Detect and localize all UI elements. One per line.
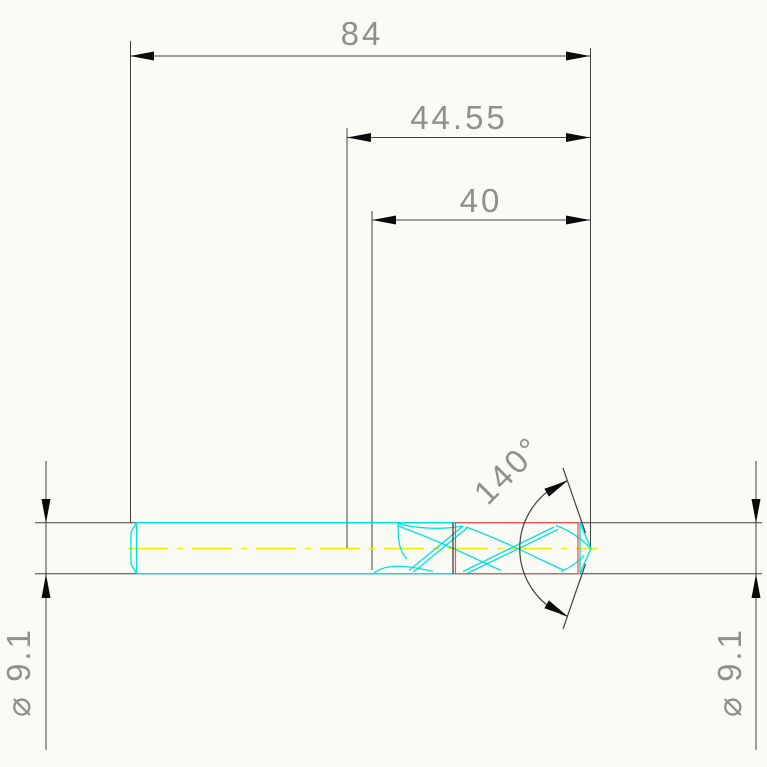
arrowhead-40-right — [566, 216, 590, 225]
flute-edge — [468, 530, 558, 574]
flute-tip-curve — [556, 526, 590, 549]
dim-44-55-label: 44.55 — [410, 99, 508, 136]
arrowhead-44-55-right — [566, 133, 590, 142]
arrowhead-84-right — [566, 52, 590, 61]
arrowhead-44-55-left — [347, 133, 371, 142]
point-face-top — [580, 523, 591, 549]
dim-diameter-left-label: ⌀ 9.1 — [0, 627, 37, 717]
dim-diameter-right-label: ⌀ 9.1 — [711, 627, 748, 717]
flute-runout-bottom — [374, 566, 433, 573]
arrowhead-84-left — [130, 52, 154, 61]
arrowhead-diameter-right-down — [752, 499, 761, 523]
point-face-bottom — [580, 549, 591, 574]
arrowhead-angle-top — [544, 481, 567, 497]
arrowhead-40-left — [372, 216, 396, 225]
dimension-diameter-left: ⌀ 9.1 — [0, 461, 51, 750]
dimension-shank-to-point: 44.55 — [347, 99, 590, 142]
arrowhead-angle-bottom — [544, 600, 567, 616]
technical-drawing: 84 44.55 40 ⌀ 9.1 ⌀ 9.1 — [0, 0, 767, 767]
dimension-point-angle: 140° — [466, 428, 585, 629]
arrowhead-diameter-right-up — [752, 574, 761, 598]
extension-lines — [35, 41, 762, 574]
dim-40-label: 40 — [460, 182, 503, 219]
dim-84-label: 84 — [341, 15, 384, 52]
dimension-diameter-right: ⌀ 9.1 — [711, 461, 761, 750]
arrowhead-diameter-left-up — [42, 574, 51, 598]
dimension-overall-length: 84 — [130, 15, 590, 61]
dimension-flute-length: 40 — [372, 182, 590, 225]
arrowhead-diameter-left-down — [42, 499, 51, 523]
dim-point-angle-label: 140° — [466, 428, 549, 511]
